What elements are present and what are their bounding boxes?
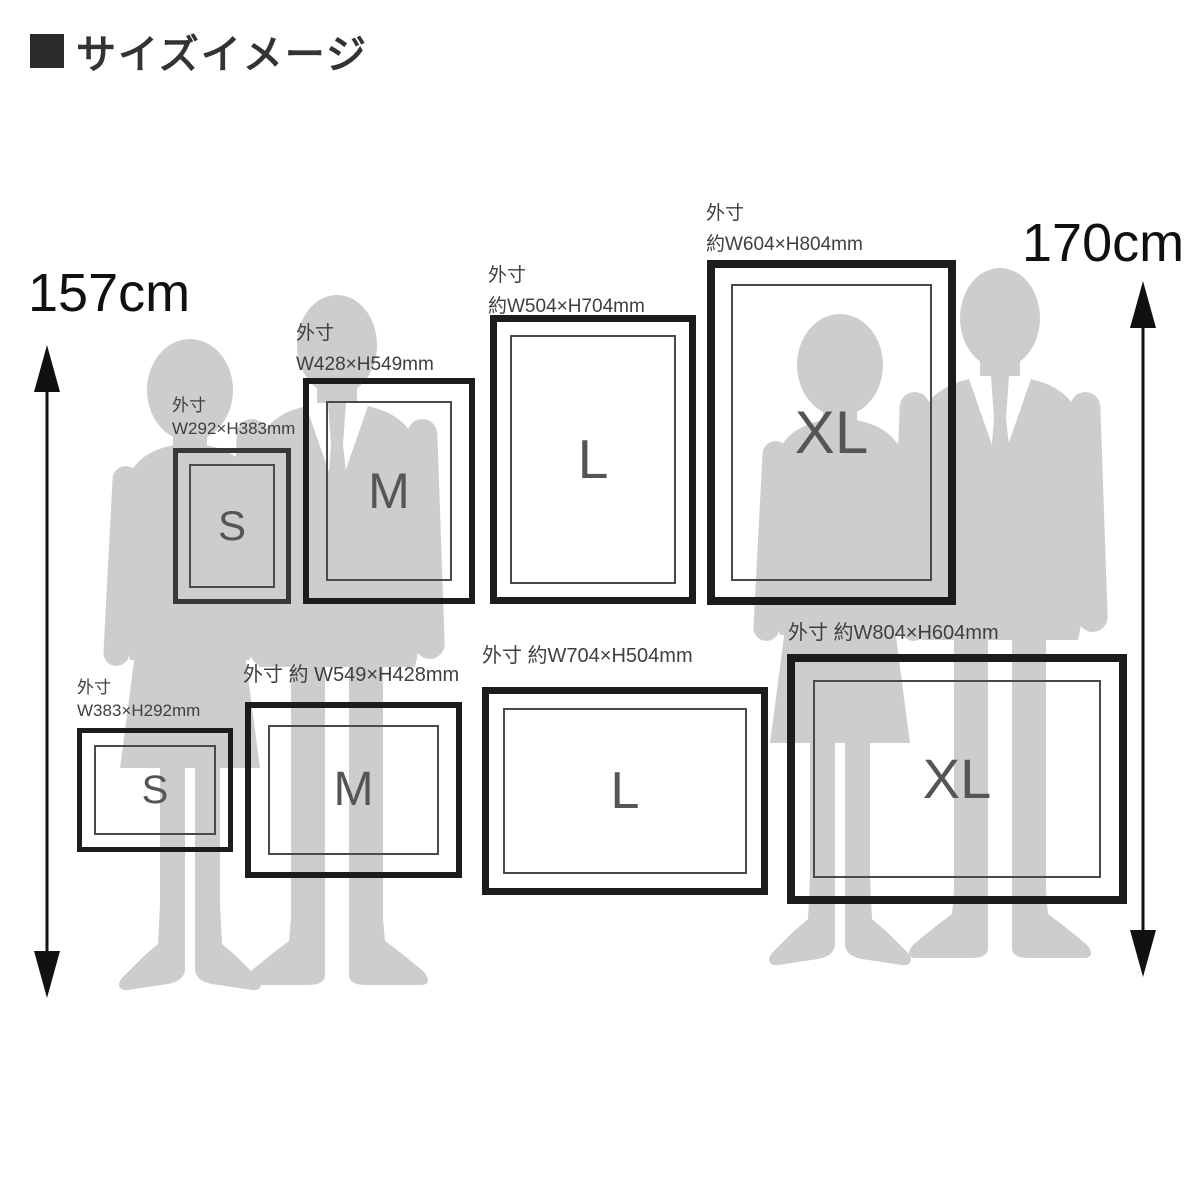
height-label-left: 157cm [28, 262, 190, 324]
dim-label-title: 外寸 [488, 260, 645, 291]
size-letter-s: S [218, 505, 246, 547]
size-letter-l: L [611, 765, 640, 817]
height-arrow-right [1130, 281, 1156, 977]
frame-landscape-s: S [77, 728, 233, 852]
page-title: サイズイメージ [30, 22, 368, 80]
size-letter-m: M [368, 466, 410, 516]
size-letter-s: S [142, 770, 169, 810]
frame-portrait-xl: XL [707, 260, 956, 605]
dim-label-title: 外寸 [706, 198, 863, 229]
dim-label-value: 約W504×H704mm [488, 291, 645, 322]
dim-label-title: 外寸 約 W549×H428mm [243, 662, 459, 688]
dim-label-title: 外寸 約W704×H504mm [482, 643, 693, 669]
dim-label-landscape-s: 外寸 W383×H292mm [77, 676, 200, 722]
size-letter-xl: XL [923, 751, 992, 807]
frame-landscape-m: M [245, 702, 462, 878]
dim-label-title: 外寸 [296, 318, 434, 349]
size-letter-xl: XL [795, 403, 868, 463]
height-arrow-left [34, 345, 60, 998]
height-label-right: 170cm [1022, 212, 1184, 274]
size-comparison-diagram: サイズイメージ 157cm 170cm 外寸 W292×H383mm S 外寸 … [0, 0, 1200, 1200]
frame-landscape-l: L [482, 687, 768, 895]
frame-portrait-l: L [490, 315, 696, 604]
dim-label-landscape-xl: 外寸 約W804×H604mm [788, 620, 999, 646]
dim-label-value: W292×H383mm [172, 417, 295, 440]
dim-label-portrait-l: 外寸 約W504×H704mm [488, 260, 645, 322]
dim-label-title: 外寸 [172, 394, 295, 417]
size-letter-l: L [578, 432, 609, 487]
title-square-icon [30, 34, 64, 68]
dim-label-landscape-l: 外寸 約W704×H504mm [482, 643, 693, 669]
dim-label-landscape-m: 外寸 約 W549×H428mm [243, 662, 459, 688]
dim-label-portrait-s: 外寸 W292×H383mm [172, 394, 295, 440]
frame-landscape-xl: XL [787, 654, 1127, 904]
dim-label-value: W428×H549mm [296, 349, 434, 380]
dim-label-title: 外寸 [77, 676, 200, 699]
size-letter-m: M [334, 766, 374, 814]
dim-label-portrait-xl: 外寸 約W604×H804mm [706, 198, 863, 260]
dim-label-value: 約W604×H804mm [706, 229, 863, 260]
dim-label-value: W383×H292mm [77, 699, 200, 722]
dim-label-portrait-m: 外寸 W428×H549mm [296, 318, 434, 380]
page-title-text: サイズイメージ [76, 22, 368, 80]
frame-portrait-m: M [303, 378, 475, 604]
dim-label-title: 外寸 約W804×H604mm [788, 620, 999, 646]
frame-portrait-s: S [173, 448, 291, 604]
